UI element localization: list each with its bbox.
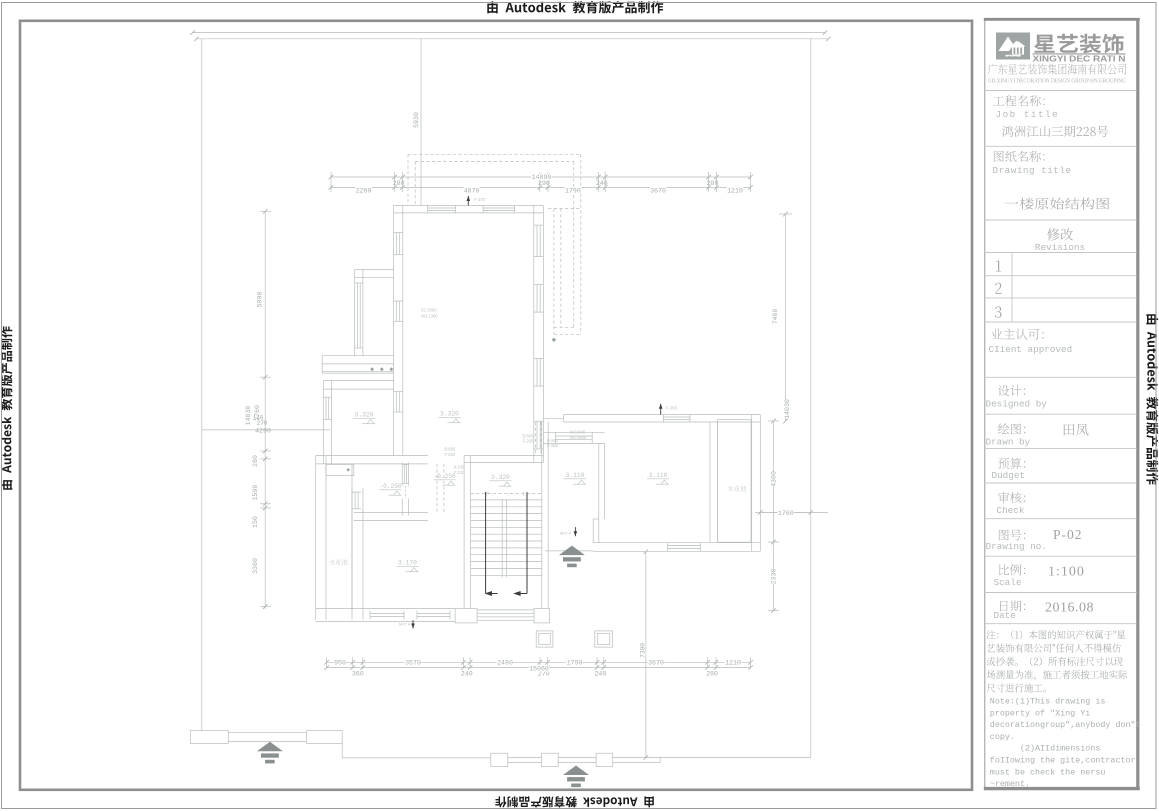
svg-text:3.110: 3.110 bbox=[566, 472, 585, 479]
svg-text:-0.250: -0.250 bbox=[379, 483, 402, 490]
svg-text:2016.08: 2016.08 bbox=[1045, 601, 1094, 616]
svg-text:3570: 3570 bbox=[405, 659, 421, 666]
svg-text:1:100: 1:100 bbox=[1048, 565, 1085, 580]
svg-text:7400: 7400 bbox=[772, 309, 779, 325]
svg-text:1590: 1590 bbox=[252, 485, 259, 501]
svg-text:3.110: 3.110 bbox=[649, 472, 668, 479]
svg-text:2330: 2330 bbox=[771, 569, 778, 585]
svg-text:Dudget: Dudget bbox=[992, 470, 1025, 481]
svg-text:(2)AIIdimensions: (2)AIIdimensions bbox=[990, 744, 1101, 754]
svg-text:3670: 3670 bbox=[648, 659, 664, 666]
svg-text:~rement.: ~rement. bbox=[990, 779, 1030, 789]
svg-text:950: 950 bbox=[334, 659, 346, 666]
svg-text:Drawn by: Drawn by bbox=[986, 436, 1031, 447]
svg-text:3.320: 3.320 bbox=[440, 411, 459, 418]
svg-text:4870: 4870 bbox=[464, 187, 480, 194]
svg-text:Date: Date bbox=[994, 610, 1016, 621]
svg-text:Drawing no.: Drawing no. bbox=[986, 541, 1047, 552]
svg-text:CIient approved: CIient approved bbox=[989, 344, 1073, 355]
svg-text:290: 290 bbox=[538, 180, 550, 187]
svg-text:must be check the nersu: must be check the nersu bbox=[990, 767, 1106, 777]
svg-text:F-370: F-370 bbox=[474, 197, 486, 202]
svg-text:5890: 5890 bbox=[257, 292, 264, 308]
svg-text:280: 280 bbox=[393, 180, 405, 187]
svg-text:7300: 7300 bbox=[639, 643, 646, 658]
svg-text:XINGYI DEC RATI N: XINGYI DEC RATI N bbox=[1033, 54, 1126, 63]
svg-text:M2:2M0: M2:2M0 bbox=[570, 430, 586, 435]
svg-text:M07 A: M07 A bbox=[399, 622, 411, 627]
svg-text:Job title: Job title bbox=[996, 109, 1060, 120]
svg-text:3.170: 3.170 bbox=[398, 560, 417, 567]
svg-text:240: 240 bbox=[461, 670, 473, 677]
svg-text:M07 A: M07 A bbox=[560, 531, 572, 536]
svg-text:Designed by: Designed by bbox=[986, 398, 1048, 409]
svg-text:5930: 5930 bbox=[413, 112, 420, 128]
svg-text:F:250: F:250 bbox=[444, 452, 455, 457]
svg-text:decorationgroup",anybody don"t: decorationgroup",anybody don"t bbox=[990, 720, 1141, 730]
svg-text:1760: 1760 bbox=[778, 510, 794, 517]
svg-text:F:250: F:250 bbox=[523, 439, 534, 444]
svg-text:280: 280 bbox=[707, 180, 719, 187]
svg-text:F-260: F-260 bbox=[547, 443, 559, 448]
svg-text:3670: 3670 bbox=[650, 187, 666, 194]
svg-text:2480: 2480 bbox=[497, 659, 513, 666]
svg-text:280: 280 bbox=[252, 455, 259, 467]
svg-text:W2:1380: W2:1380 bbox=[421, 314, 438, 319]
svg-text:S1:5060: S1:5060 bbox=[421, 308, 437, 313]
svg-text:3.320: 3.320 bbox=[355, 412, 374, 419]
svg-text:F:210: F:210 bbox=[454, 470, 465, 475]
svg-text:240: 240 bbox=[594, 670, 606, 677]
svg-text:4290: 4290 bbox=[255, 428, 271, 435]
svg-text:4300: 4300 bbox=[771, 471, 778, 487]
svg-text:240: 240 bbox=[596, 180, 608, 187]
svg-text:360: 360 bbox=[352, 670, 364, 677]
svg-text:3360: 3360 bbox=[252, 558, 259, 574]
svg-text:M2:2600: M2:2600 bbox=[570, 435, 587, 440]
svg-text:GD.XINGYI DECORATION DESIGN GR: GD.XINGYI DECORATION DESIGN GROUP HN.GRO… bbox=[988, 78, 1126, 85]
svg-text:1210: 1210 bbox=[727, 187, 743, 194]
svg-text:F-350: F-350 bbox=[666, 406, 678, 411]
svg-text:foIIowing the gite,contractor: foIIowing the gite,contractor bbox=[990, 756, 1136, 766]
svg-text:Note:(1)This drawing is: Note:(1)This drawing is bbox=[990, 697, 1106, 707]
svg-text:1210: 1210 bbox=[725, 659, 741, 666]
svg-text:copy.: copy. bbox=[990, 732, 1015, 742]
svg-text:3.320: 3.320 bbox=[491, 474, 510, 481]
svg-text:15060: 15060 bbox=[529, 665, 549, 672]
svg-text:140: 140 bbox=[253, 415, 264, 422]
svg-text:150: 150 bbox=[252, 516, 259, 528]
svg-text:2260: 2260 bbox=[356, 187, 372, 194]
svg-text:B:600: B:600 bbox=[444, 447, 456, 452]
svg-text:property of "Xing Yi: property of "Xing Yi bbox=[990, 708, 1091, 718]
svg-text:1790: 1790 bbox=[567, 659, 583, 666]
svg-text:14030: 14030 bbox=[245, 406, 252, 426]
svg-text:280: 280 bbox=[706, 670, 718, 677]
svg-text:9:100: 9:100 bbox=[454, 465, 465, 470]
svg-text:14030: 14030 bbox=[784, 399, 791, 419]
svg-text:1790: 1790 bbox=[565, 187, 581, 194]
svg-text:Check: Check bbox=[997, 505, 1025, 516]
svg-text:Drawing title: Drawing title bbox=[993, 165, 1072, 176]
svg-text:Scale: Scale bbox=[994, 577, 1022, 588]
svg-text:P-02: P-02 bbox=[1053, 527, 1083, 542]
svg-text:Revisions: Revisions bbox=[1035, 242, 1085, 253]
